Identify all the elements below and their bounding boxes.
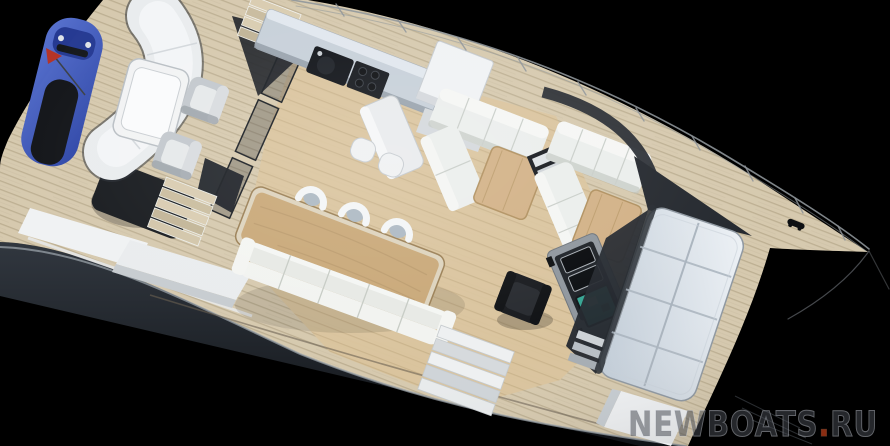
render-canvas: NEWBOATS.RU <box>0 0 890 446</box>
watermark-domain: RU <box>830 405 878 445</box>
watermark-dot: . <box>818 405 830 445</box>
watermark-text: NEWBOATS.RU <box>628 405 878 445</box>
watermark-site: NEWBOATS <box>628 405 818 445</box>
yacht-top-view-render: NEWBOATS.RU <box>0 0 890 446</box>
